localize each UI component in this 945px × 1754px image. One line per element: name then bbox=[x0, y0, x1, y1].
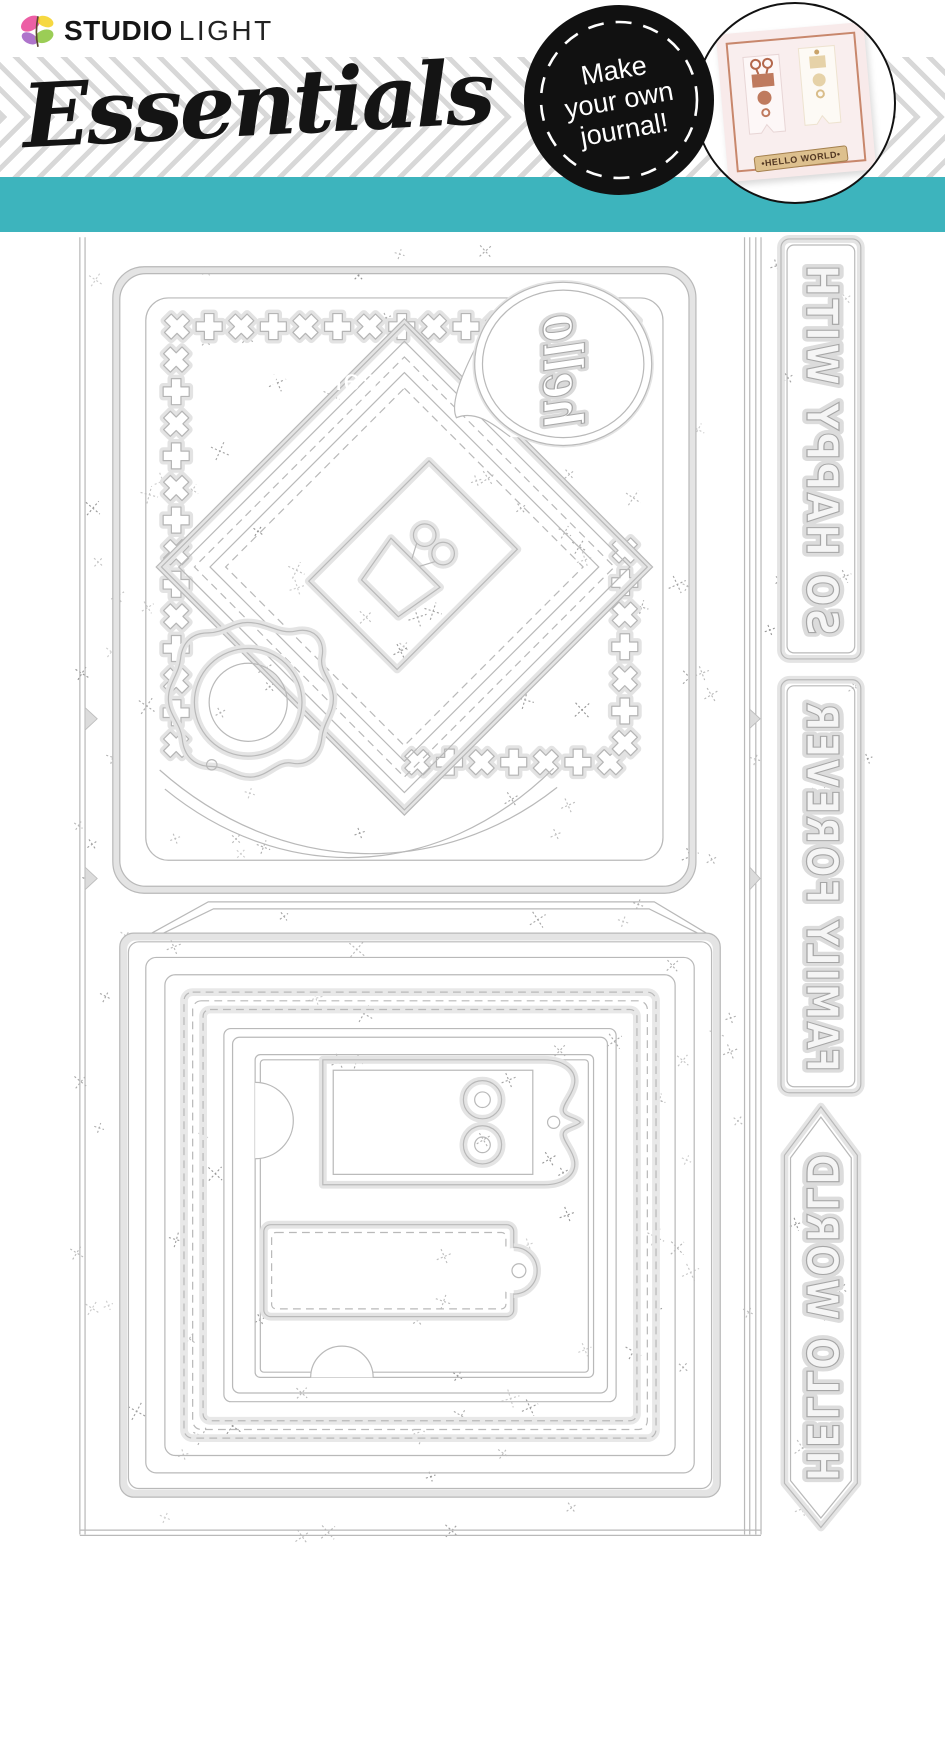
pocket-die bbox=[120, 902, 720, 1497]
hello-script: hello bbox=[531, 314, 595, 427]
sample-tag-terracotta bbox=[742, 53, 787, 138]
butterfly-icon bbox=[18, 12, 58, 50]
word-die-family-forever: FAMILY FOREVER FAMILY FOREVER bbox=[781, 680, 861, 1093]
studio-light-logo: STUDIOLIGHT bbox=[18, 12, 274, 50]
release-notch bbox=[85, 708, 97, 731]
scalloped-circle-die bbox=[168, 622, 333, 777]
envelope-flap-curve-left bbox=[165, 768, 554, 857]
die-sheet: hello hello bbox=[0, 232, 945, 1754]
packaging-sheet: STUDIOLIGHT Essentials Cutting dies Make… bbox=[0, 0, 945, 1754]
banner-label: Cutting dies bbox=[40, 364, 540, 398]
release-notch bbox=[750, 709, 760, 728]
word-die-hello-world: HELLO WORLD HELLO WORLD bbox=[784, 1107, 857, 1528]
word-die-text: SO HAPPY WITH bbox=[796, 262, 846, 635]
logo-text-studio: STUDIO bbox=[64, 15, 173, 47]
eyelet-ticket-tag-die bbox=[323, 1060, 581, 1185]
binder-clip-body bbox=[355, 538, 440, 623]
binder-clip-tag-die bbox=[309, 461, 518, 670]
word-die-text: HELLO WORLD bbox=[796, 1152, 846, 1482]
badge-text: Make your own journal! bbox=[509, 0, 729, 210]
release-notch bbox=[750, 867, 760, 890]
stitched-luggage-tag-die bbox=[264, 1225, 537, 1317]
sample-tag-cream bbox=[797, 44, 842, 129]
logo-text-light: LIGHT bbox=[179, 15, 274, 47]
envelope-flap-curve-right bbox=[160, 770, 557, 854]
badge-make-your-own-journal: Make your own journal! bbox=[524, 5, 714, 195]
word-die-text: FAMILY FOREVER bbox=[796, 701, 846, 1072]
square-envelope-die: hello hello bbox=[113, 267, 696, 894]
sample-card: •HELLO WORLD• bbox=[716, 22, 876, 182]
release-notch bbox=[85, 867, 97, 890]
